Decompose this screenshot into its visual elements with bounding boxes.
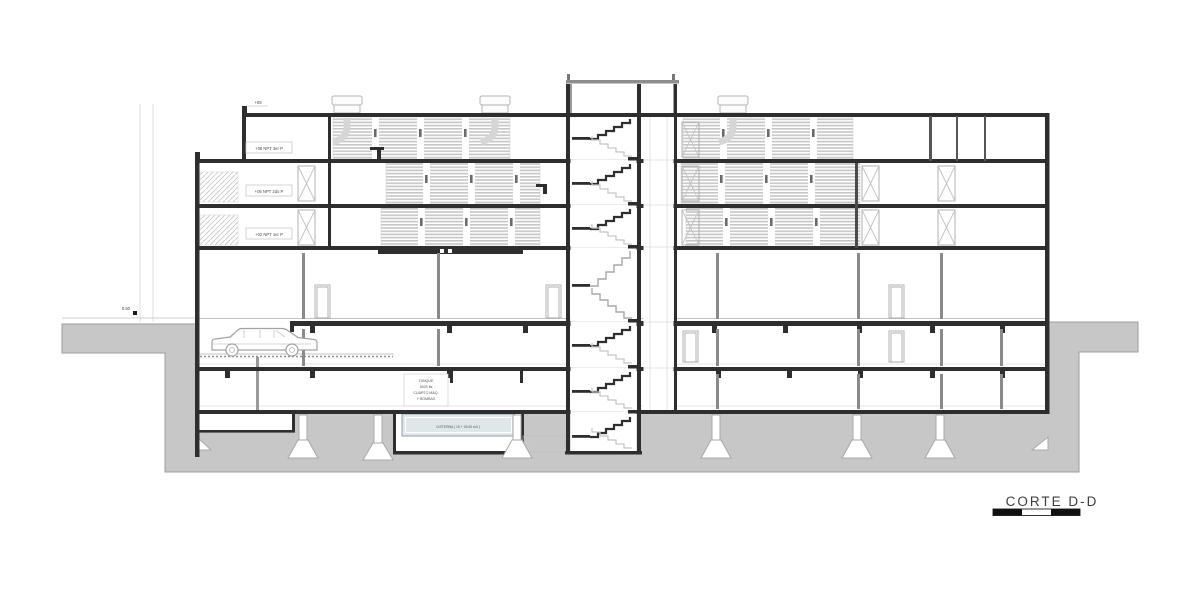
drawing-sheet: CISTERNA ( 15 + 35.00 m3 ): [0, 0, 1202, 600]
roof-slab: [242, 113, 1049, 117]
stair-wall-left: [566, 84, 570, 452]
filter-bed: [523, 436, 565, 452]
level-tag-2: +05 NPT 2do P: [246, 185, 292, 196]
unit-stairs-hatch: [200, 172, 238, 245]
tank-label-2: 5000 lts: [420, 385, 433, 389]
right-wall: [1045, 113, 1050, 414]
svg-text:+05 NPT 2do P: +05 NPT 2do P: [255, 189, 284, 194]
tank-label-1: TANQUE: [419, 379, 434, 383]
svg-text:0.50: 0.50: [122, 306, 131, 311]
stair-wall-right: [637, 84, 641, 452]
section-drawing: CISTERNA ( 15 + 35.00 m3 ): [0, 0, 1202, 600]
tank-label-3: CUARTO MAQ.: [413, 391, 438, 395]
elevator-shaft: [644, 117, 674, 410]
svg-text:+02 NPT 1er P: +02 NPT 1er P: [255, 232, 283, 237]
section-title: CORTE D-D: [1006, 494, 1099, 509]
tank-room: TANQUE 5000 lts CUARTO MAQ. Y BOMBAS: [404, 371, 523, 406]
roof-level-mark: +09: [254, 100, 262, 105]
upper-left-wall: [242, 106, 246, 163]
car: [212, 329, 317, 357]
ramp-post: [256, 357, 259, 410]
cistern-pit: CISTERNA ( 15 + 35.00 m3 ): [393, 410, 524, 455]
left-wall: [195, 152, 200, 457]
level-tag-1: +02 NPT 1er P: [246, 228, 292, 239]
cistern-label: CISTERNA ( 15 + 35.00 m3 ): [436, 425, 480, 429]
title-block: CORTE D-D: [993, 494, 1098, 516]
stair-core: [571, 117, 638, 451]
stair-bulkhead: [566, 74, 679, 115]
left-pit-room: [199, 413, 293, 431]
scale-bar: [993, 509, 1080, 516]
car-wheel: [286, 344, 298, 356]
parking-ramp: [198, 354, 394, 410]
svg-text:+08 NPT 3er P: +08 NPT 3er P: [255, 146, 283, 151]
street-level-mark: 0.50: [122, 306, 137, 315]
car-wheel: [226, 344, 238, 356]
reference-lines: [62, 104, 1045, 406]
tank-label-4: Y BOMBAS: [417, 397, 436, 401]
level-tag-3: +08 NPT 3er P: [246, 142, 292, 153]
elevator-wall: [674, 84, 677, 414]
